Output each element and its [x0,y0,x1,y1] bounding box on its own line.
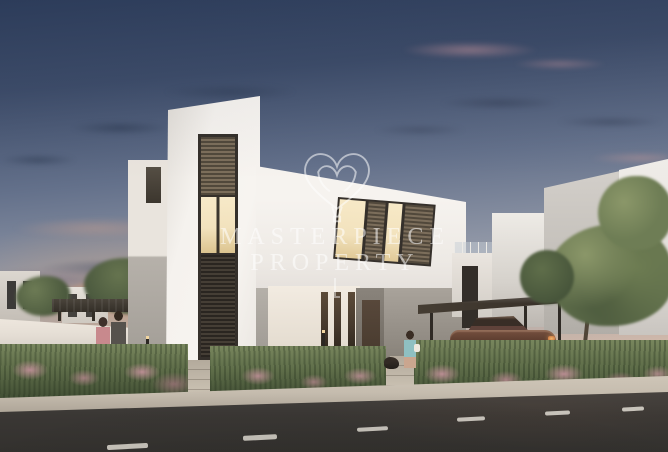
watermark-brand-line2: PROPERTY [205,250,465,277]
villa-side-volume [128,160,170,372]
slit-window [348,292,355,348]
tree-canopy [598,176,668,250]
side-window [146,167,161,203]
louver-panel [201,137,235,195]
pergola-roof [52,299,140,312]
dog [384,357,399,369]
heart-balloon-logo-icon [293,140,381,226]
tree-canopy [520,250,574,304]
pergola-post [92,311,95,321]
property-render-image: MASTERPIECE PROPERTY [0,0,668,452]
pergola-post [58,311,61,321]
watermark-brand-line1: MASTERPIECE [205,224,465,251]
watermark-script-glyph [330,276,340,302]
white-bag [414,344,420,352]
